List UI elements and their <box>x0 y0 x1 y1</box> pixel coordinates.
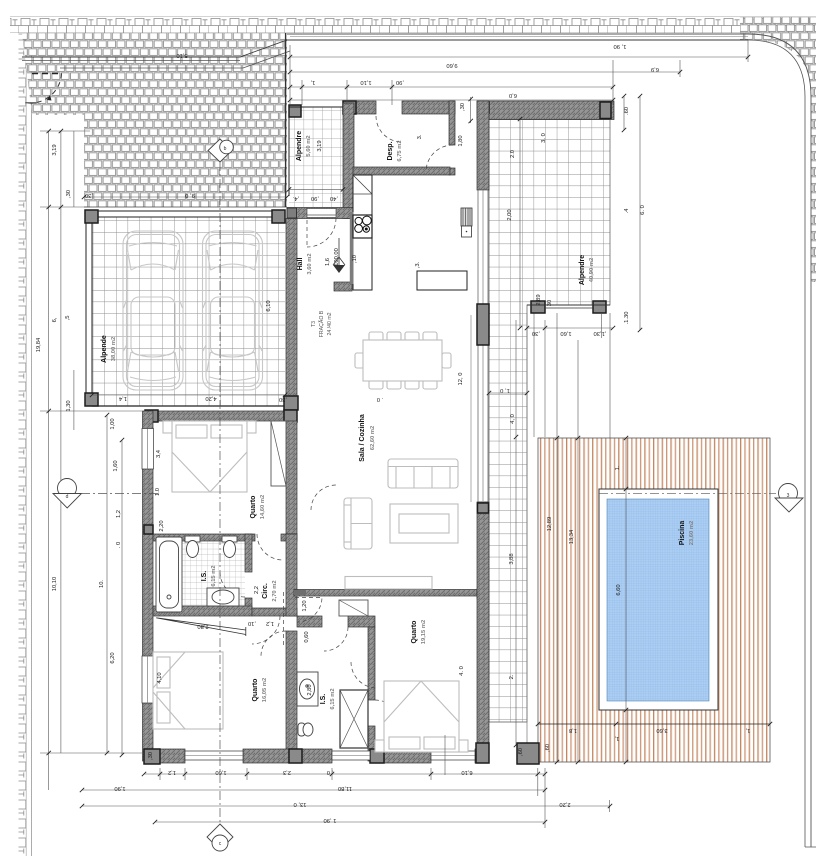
svg-text:3.: 3. <box>417 134 423 139</box>
svg-text:1,2: 1,2 <box>116 510 122 518</box>
svg-text:1,80: 1,80 <box>458 135 464 146</box>
svg-text:2,3: 2,3 <box>283 769 291 775</box>
svg-text:.4: .4 <box>624 208 630 214</box>
svg-text:3,60 m2: 3,60 m2 <box>307 253 313 274</box>
svg-text:3,4: 3,4 <box>156 449 162 458</box>
svg-text:2.0: 2.0 <box>510 150 516 158</box>
svg-text:Circ.: Circ. <box>262 583 269 599</box>
svg-text:3,19: 3,19 <box>317 140 323 151</box>
svg-text:Quarto: Quarto <box>411 621 418 644</box>
svg-text:,30: ,30 <box>148 752 154 760</box>
svg-text:T3: T3 <box>311 321 317 327</box>
svg-text:3,19: 3,19 <box>52 144 58 155</box>
svg-text:,90: ,90 <box>311 195 319 201</box>
svg-text:.60: .60 <box>624 107 630 115</box>
svg-text:4. 0: 4. 0 <box>459 666 465 676</box>
svg-text:,4.: ,4. <box>292 195 299 201</box>
svg-text:1,60: 1,60 <box>560 330 571 336</box>
svg-text:1,2: 1,2 <box>168 769 176 775</box>
svg-text:,3.: ,3. <box>415 261 421 268</box>
svg-text:30: 30 <box>547 300 553 306</box>
svg-text:,10: ,10 <box>352 255 358 263</box>
svg-text:3,88: 3,88 <box>509 553 515 564</box>
svg-text:Hall: Hall <box>297 258 304 271</box>
svg-text:4,20: 4,20 <box>205 395 216 401</box>
svg-text:2,89: 2,89 <box>536 294 542 305</box>
svg-text:0,60: 0,60 <box>304 631 310 642</box>
svg-text:11,80: 11,80 <box>338 785 352 791</box>
svg-text:6,9: 6,9 <box>651 66 659 72</box>
svg-text:100.00: 100.00 <box>334 248 340 266</box>
svg-text:,60: ,60 <box>545 744 551 752</box>
svg-text:6,10: 6,10 <box>461 769 472 775</box>
svg-text:. 0: . 0 <box>377 396 383 402</box>
svg-text:9,60: 9,60 <box>446 62 457 68</box>
svg-text:Desp.: Desp. <box>387 141 394 160</box>
svg-text:,90: ,90 <box>396 79 404 85</box>
svg-text:Sala / Cozinha: Sala / Cozinha <box>359 414 366 462</box>
svg-text:3,60: 3,60 <box>656 727 667 733</box>
svg-text:2,20: 2,20 <box>559 801 570 807</box>
svg-text:2,2: 2,2 <box>254 586 260 594</box>
svg-text:1,: 1, <box>310 79 315 85</box>
svg-text:1.: 1. <box>615 465 621 470</box>
svg-text:Piscina: Piscina <box>679 521 686 546</box>
svg-text:1,8: 1,8 <box>569 727 577 733</box>
svg-text:,10: ,10 <box>248 620 256 626</box>
svg-text:1,: 1, <box>614 735 619 741</box>
svg-text:1, 0: 1, 0 <box>500 387 510 393</box>
svg-text:6,60: 6,60 <box>616 584 622 595</box>
svg-text:Quarto: Quarto <box>250 496 257 519</box>
svg-text:40,90 m2: 40,90 m2 <box>589 258 595 283</box>
svg-text:12, 0: 12, 0 <box>458 373 464 386</box>
svg-text:3. 0: 3. 0 <box>541 133 547 143</box>
svg-text:Quarto: Quarto <box>252 679 259 702</box>
svg-text:5,60 m2: 5,60 m2 <box>306 135 312 156</box>
svg-text:19,84: 19,84 <box>36 337 42 352</box>
svg-text:10.: 10. <box>99 580 105 588</box>
svg-text:16,05 m2: 16,05 m2 <box>262 678 268 703</box>
svg-text:,60: ,60 <box>518 748 524 756</box>
svg-text:d: d <box>66 494 69 500</box>
svg-text:1, 90: 1, 90 <box>614 43 627 49</box>
svg-text:6,15 m2: 6,15 m2 <box>330 688 336 709</box>
svg-text:2,20: 2,20 <box>159 520 165 531</box>
svg-text:6,75 m2: 6,75 m2 <box>397 140 403 161</box>
svg-text:6,0: 6,0 <box>509 92 517 98</box>
svg-text:6,15 m2: 6,15 m2 <box>211 565 217 586</box>
svg-text:,30: ,30 <box>460 103 466 111</box>
svg-text:5,10: 5,10 <box>176 52 187 58</box>
svg-text:I.S.: I.S. <box>201 571 208 582</box>
svg-text:Alpende: Alpende <box>101 335 108 363</box>
svg-text:1,10: 1,10 <box>360 79 371 85</box>
svg-text:9, 0: 9, 0 <box>185 192 195 198</box>
svg-text:,30: ,30 <box>532 330 540 336</box>
svg-text:Alpendre: Alpendre <box>296 131 303 161</box>
svg-text:1,6: 1,6 <box>325 258 331 266</box>
svg-text:.1.30: .1.30 <box>624 312 630 325</box>
svg-text:6,20: 6,20 <box>110 652 116 663</box>
svg-text:10,10: 10,10 <box>52 577 58 592</box>
svg-text:I.S.: I.S. <box>320 694 327 705</box>
svg-text:14,60 m2: 14,60 m2 <box>260 495 266 520</box>
svg-text:6. 0: 6. 0 <box>640 205 646 215</box>
svg-text:2,70 m2: 2,70 m2 <box>272 580 278 601</box>
svg-text:1,4: 1,4 <box>118 395 127 401</box>
svg-text:2,80: 2,80 <box>307 684 313 695</box>
svg-text:4, 0: 4, 0 <box>510 414 516 424</box>
svg-text:,40: ,40 <box>330 195 338 201</box>
svg-text:38,00 m2: 38,00 m2 <box>111 337 117 362</box>
svg-text:12,89: 12,89 <box>547 517 553 532</box>
svg-text:1,: 1, <box>745 727 750 733</box>
svg-text:6,10: 6,10 <box>266 300 272 311</box>
svg-text:2,80: 2,80 <box>197 623 208 629</box>
svg-text:,1,30: ,1,30 <box>594 330 607 336</box>
svg-text:Alpendre: Alpendre <box>579 255 586 285</box>
svg-text:1,60: 1,60 <box>113 460 119 471</box>
svg-text:19,15 m2: 19,15 m2 <box>421 620 427 645</box>
svg-text:13, 0: 13, 0 <box>294 801 307 807</box>
svg-text:1 ,90: 1 ,90 <box>324 817 337 823</box>
svg-text:. 0: . 0 <box>116 542 122 548</box>
svg-text:2,00: 2,00 <box>507 209 513 220</box>
svg-text:,30: ,30 <box>66 190 72 198</box>
svg-text:24 /40 m2: 24 /40 m2 <box>327 312 333 335</box>
svg-text:,5: ,5 <box>65 316 71 321</box>
svg-text:4,10: 4,10 <box>157 672 163 683</box>
svg-text:1.0: 1.0 <box>155 488 161 496</box>
svg-text:1,00: 1,00 <box>110 418 116 429</box>
svg-text:3: 3 <box>787 493 790 499</box>
svg-text:FRAÇÃO B: FRAÇÃO B <box>318 310 325 337</box>
svg-text:6,: 6, <box>52 317 58 322</box>
svg-text:b: b <box>224 146 227 152</box>
svg-text:1,2: 1,2 <box>266 620 274 626</box>
svg-text:62,60 m2: 62,60 m2 <box>370 426 376 451</box>
svg-text:1,90: 1,90 <box>114 785 125 791</box>
svg-text:1,30: 1,30 <box>66 400 72 411</box>
svg-text:13,34: 13,34 <box>569 529 575 544</box>
svg-text:1,20: 1,20 <box>302 600 308 611</box>
svg-text:1,60: 1,60 <box>215 769 226 775</box>
svg-text:2.: 2. <box>509 674 515 679</box>
svg-text:23,60 m2: 23,60 m2 <box>689 521 695 546</box>
